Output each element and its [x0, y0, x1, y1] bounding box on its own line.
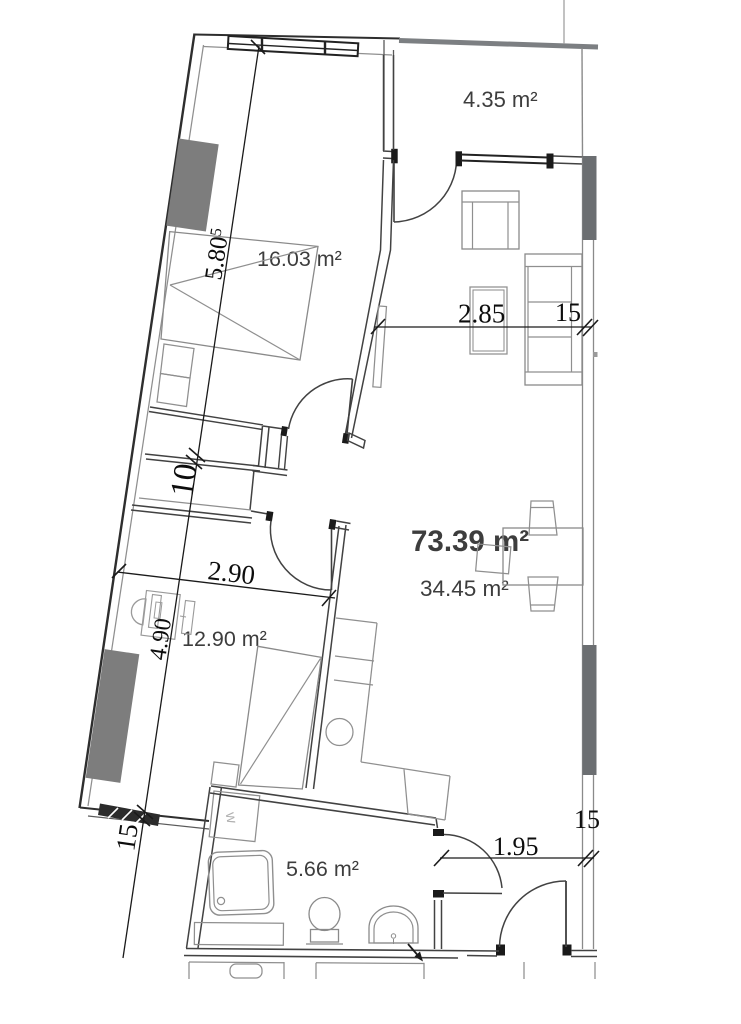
svg-text:34.45 m²: 34.45 m²	[420, 576, 509, 601]
svg-text:2.85: 2.85	[458, 299, 505, 329]
svg-text:15: 15	[110, 822, 144, 853]
svg-text:4.35 m²: 4.35 m²	[463, 87, 538, 112]
svg-text:2.90: 2.90	[206, 555, 256, 590]
svg-text:10: 10	[164, 461, 204, 499]
svg-text:73.39 m²: 73.39 m²	[411, 525, 529, 558]
svg-text:1.95: 1.95	[493, 832, 539, 861]
svg-text:15: 15	[555, 298, 581, 327]
svg-text:5.66 m²: 5.66 m²	[286, 857, 359, 881]
svg-text:12.90 m²: 12.90 m²	[182, 627, 267, 651]
svg-text:15: 15	[574, 805, 600, 834]
